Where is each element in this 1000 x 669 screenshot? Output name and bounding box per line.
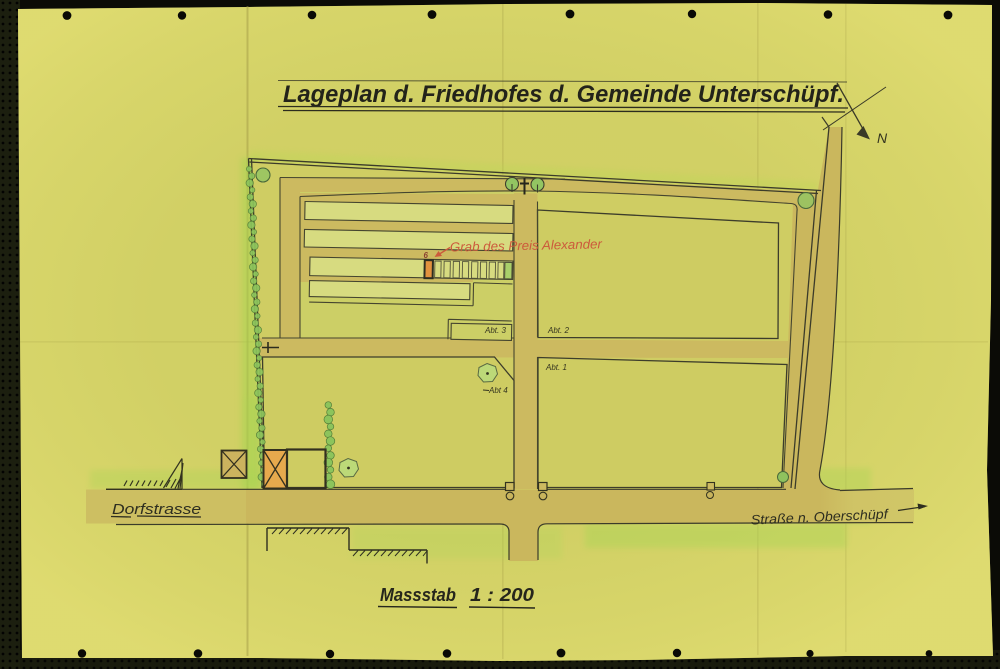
svg-text:Dorfstrasse: Dorfstrasse	[112, 501, 201, 518]
svg-text:Abt. 2: Abt. 2	[547, 326, 569, 335]
svg-text:Grab des Preis Alexander: Grab des Preis Alexander	[450, 236, 603, 254]
svg-text:Lageplan d. Friedhofes d. Geme: Lageplan d. Friedhofes d. Gemeinde Unter…	[283, 81, 844, 108]
svg-text:Abt 4: Abt 4	[488, 386, 508, 395]
svg-text:Abt. 3: Abt. 3	[484, 326, 506, 335]
svg-text:N: N	[877, 130, 888, 146]
svg-text:Abt. 1: Abt. 1	[545, 363, 567, 372]
svg-text:Massstab: Massstab	[380, 585, 456, 605]
svg-text:1 : 200: 1 : 200	[470, 585, 534, 605]
svg-text:6: 6	[424, 251, 429, 260]
